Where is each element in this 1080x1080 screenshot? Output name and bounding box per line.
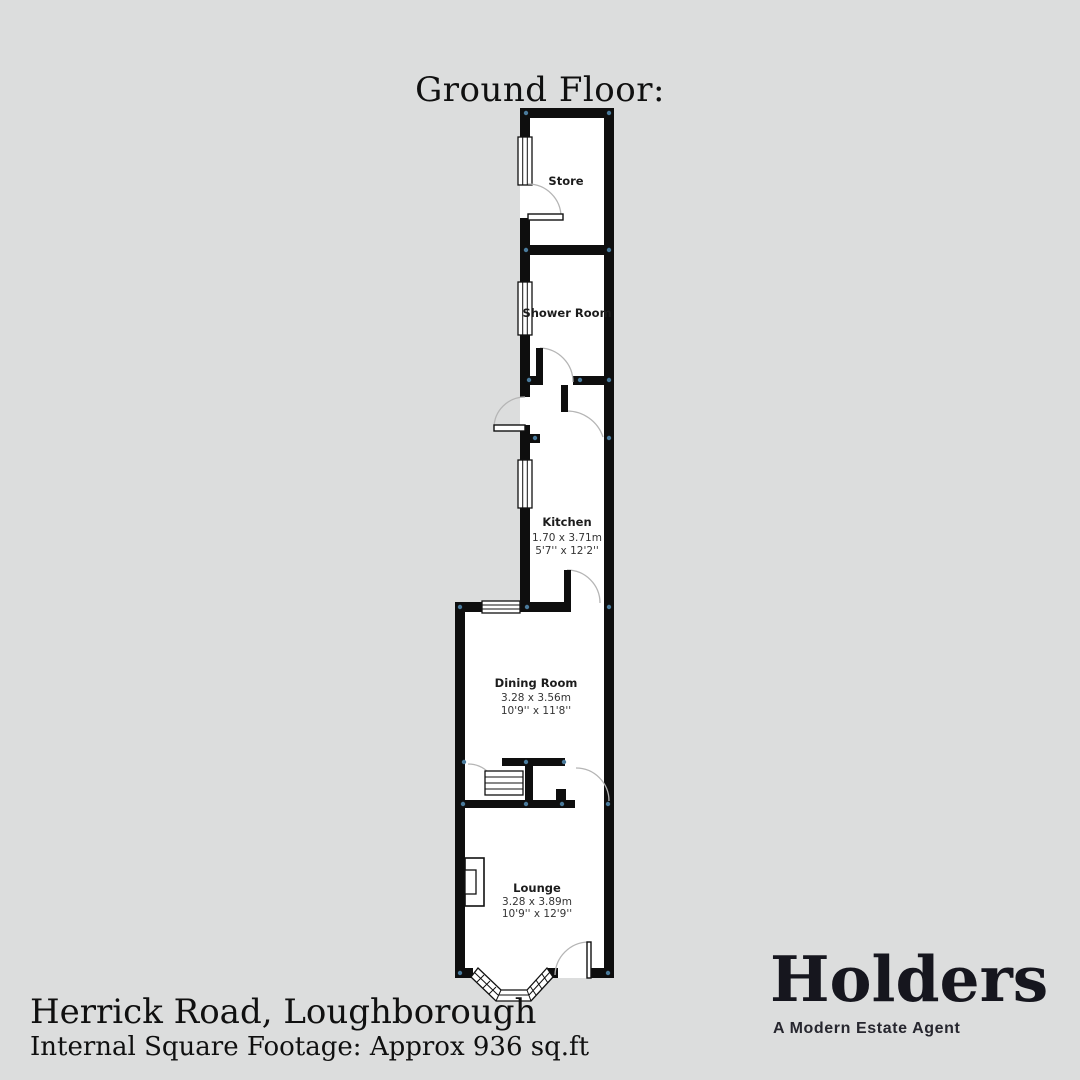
property-address: Herrick Road, Loughborough <box>30 992 536 1032</box>
lounge-door-leaf <box>587 942 591 978</box>
room-dim-kitchen-imperial: 5'7'' x 12'2'' <box>535 545 599 557</box>
square-footage: Internal Square Footage: Approx 936 sq.f… <box>30 1032 589 1062</box>
room-label-store: Store <box>548 174 583 188</box>
room-label-dining-room: Dining Room <box>495 676 578 690</box>
fireplace <box>465 858 484 906</box>
room-dim-kitchen-metric: 1.70 x 3.71m <box>532 532 602 544</box>
dining-window <box>482 601 520 613</box>
agency-tagline: A Modern Estate Agent <box>773 1020 1070 1038</box>
side-entrance-leaf <box>494 425 525 431</box>
agency-logo: Holders A Modern Estate Agent <box>770 948 1070 1038</box>
room-label-kitchen: Kitchen <box>542 515 591 529</box>
store-window <box>518 137 532 185</box>
room-label-lounge: Lounge <box>513 881 561 895</box>
stairs <box>485 771 523 795</box>
room-dim-dining-imperial: 10'9'' x 11'8'' <box>501 705 571 717</box>
room-dim-lounge-metric: 3.28 x 3.89m <box>502 896 572 908</box>
kitchen-lobby-door-leaf <box>561 385 568 412</box>
room-dim-lounge-imperial: 10'9'' x 12'9'' <box>502 908 572 920</box>
floor-plan: Store Shower Room Kitchen 1.70 x 3.71m 5… <box>440 95 640 1015</box>
floor-plan-page: Ground Floor: <box>0 0 1080 1080</box>
shower-door-leaf <box>536 348 543 385</box>
store-door-leaf <box>528 214 563 220</box>
room-dim-dining-metric: 3.28 x 3.56m <box>501 692 571 704</box>
room-label-shower-room: Shower Room <box>522 306 611 320</box>
kitchen-dining-door-leaf <box>564 570 571 602</box>
agency-name: Holders <box>770 948 1070 1011</box>
kitchen-window <box>518 460 532 508</box>
